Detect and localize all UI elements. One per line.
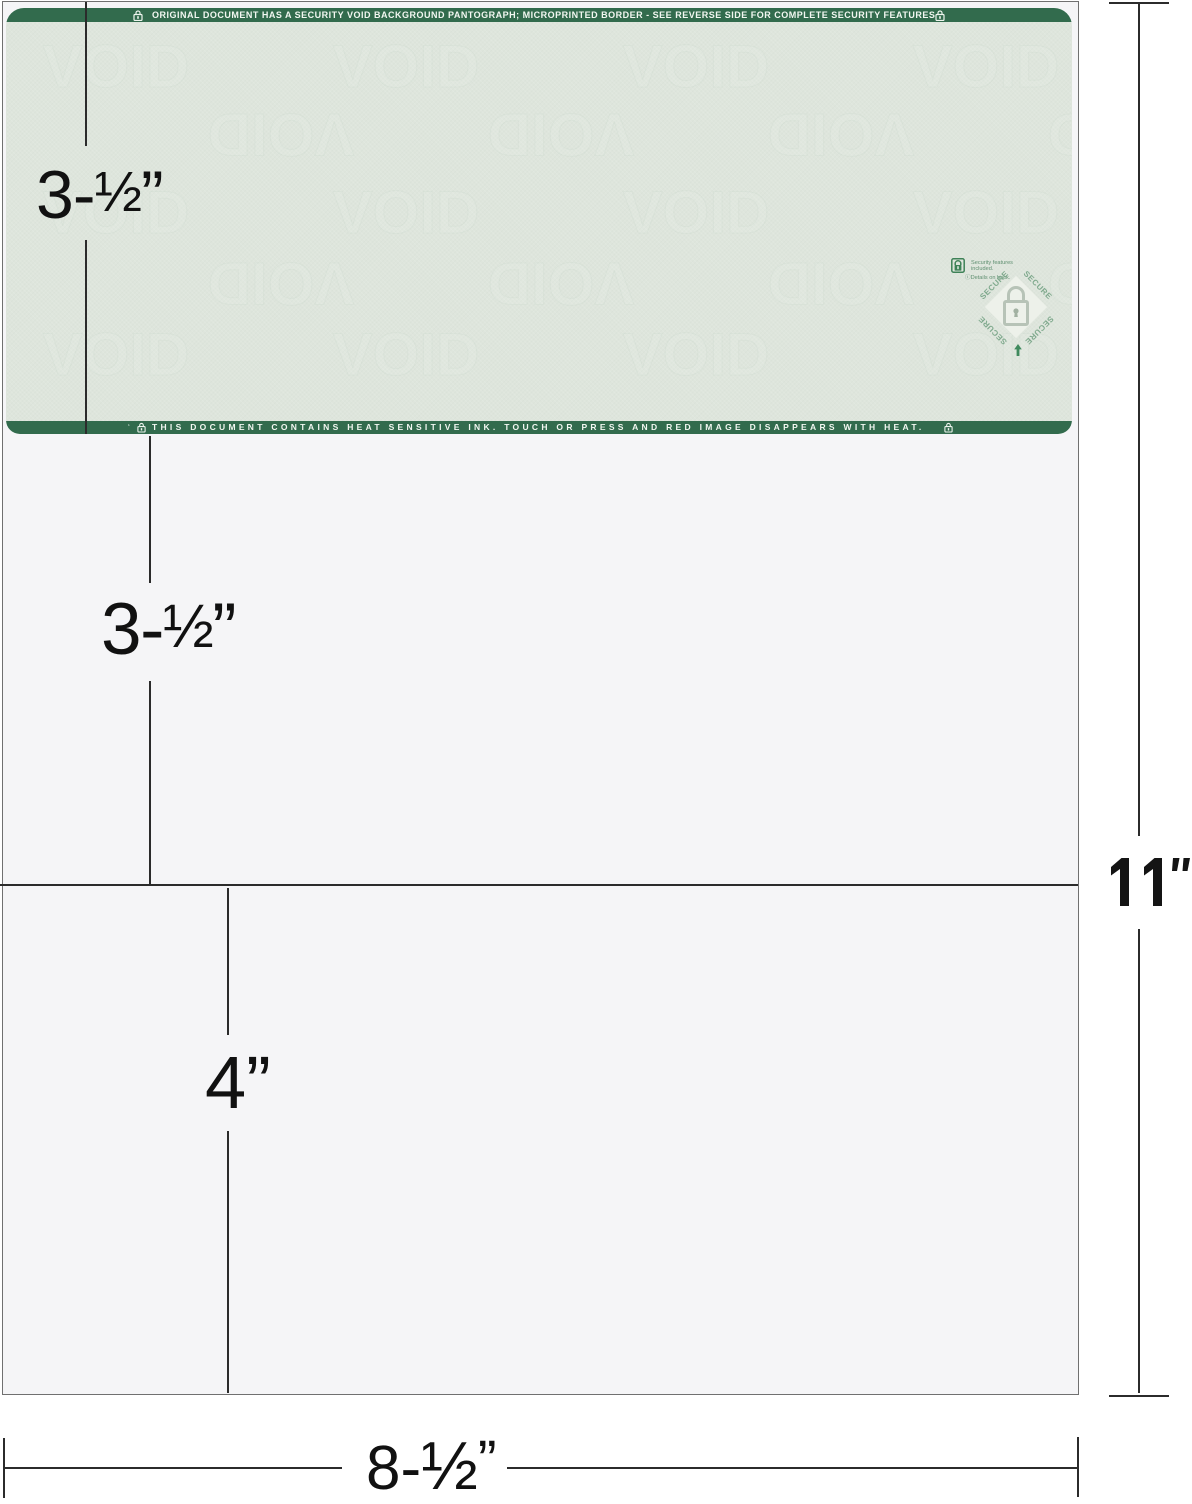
svg-text:VOID: VOID [623,33,770,100]
svg-text:VOID: VOID [488,101,635,168]
svg-text:VOID: VOID [43,321,190,388]
svg-text:VOID: VOID [768,101,915,168]
svg-text:VOID: VOID [913,179,1060,246]
svg-text:VOID: VOID [623,179,770,246]
svg-text:VOID: VOID [333,321,480,388]
svg-text:VOID: VOID [768,250,915,317]
svg-text:VOID: VOID [913,33,1060,100]
svg-text:VOID: VOID [208,101,355,168]
svg-text:VOID: VOID [333,179,480,246]
svg-text:VOID: VOID [1048,101,1072,168]
svg-text:VOID: VOID [43,33,190,100]
svg-text:VOID: VOID [208,250,355,317]
svg-text:VOID: VOID [333,33,480,100]
svg-text:VOID: VOID [488,250,635,317]
svg-text:VOID: VOID [623,321,770,388]
